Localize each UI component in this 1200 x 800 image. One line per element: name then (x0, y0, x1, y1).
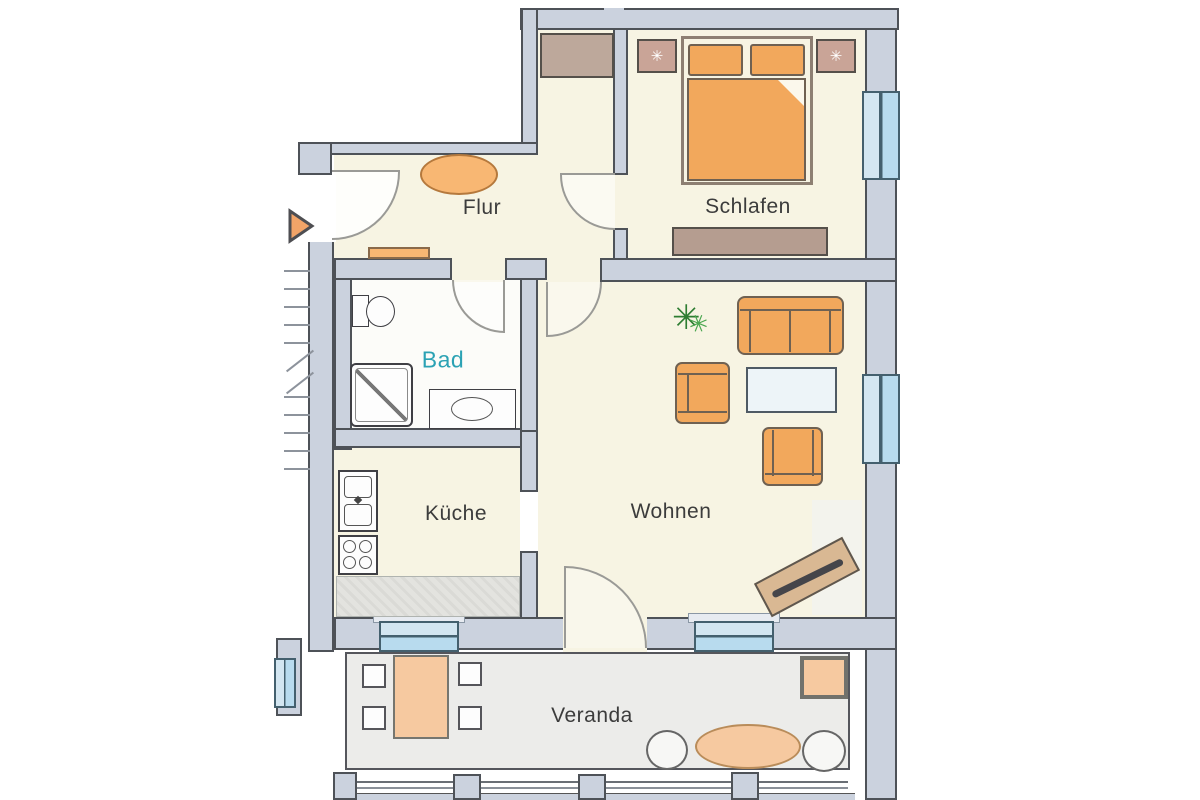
burner (343, 556, 356, 569)
burner (343, 540, 356, 553)
shower (350, 363, 413, 427)
colonnade-pillar (731, 772, 759, 800)
veranda-chair (362, 706, 386, 730)
nightstand-left: ✳ (637, 39, 677, 73)
room-label-veranda: Veranda (551, 704, 633, 728)
wohnen-door-leaf (546, 282, 548, 337)
floor-plan: ✳ ✳ ✳ ✳ (0, 0, 1200, 800)
bad-right-wall (520, 278, 538, 432)
schlafen-flur-wall (613, 28, 628, 175)
colonnade-pillar (453, 774, 481, 800)
room-label-wohnen: Wohnen (631, 500, 712, 524)
veranda-side-table (800, 656, 848, 699)
bed-pillow-left (688, 44, 743, 76)
burner (359, 540, 372, 553)
plant-icon: ✳ ✳ (672, 298, 724, 350)
room-label-schlafen: Schlafen (705, 195, 791, 219)
flur-top-wall (298, 142, 538, 155)
veranda-chair (458, 706, 482, 730)
bathroom-sink (429, 389, 516, 429)
burner (359, 556, 372, 569)
veranda-oval-table (695, 724, 801, 769)
wohnen-window (862, 374, 900, 464)
veranda-round-chair (646, 730, 688, 770)
veranda-door-leaf (564, 566, 566, 648)
wardrobe (540, 33, 614, 78)
kueche-right-wall-upper (520, 430, 538, 492)
coffee-table (746, 367, 837, 413)
veranda-chair (458, 662, 482, 686)
kueche-window (379, 621, 459, 652)
stove (338, 535, 378, 575)
entrance-arrow-icon (286, 208, 316, 244)
wohnen-veranda-window (694, 621, 774, 652)
kueche-right-wall-lower (520, 551, 538, 619)
wohnen-door-opening (547, 256, 600, 284)
top-wall-notch (604, 8, 624, 12)
schlafen-door-leaf (560, 173, 615, 175)
hall-bench (368, 247, 430, 259)
sofa-arm-line (829, 310, 831, 352)
veranda-round-chair (802, 730, 846, 772)
kitchen-counter (336, 576, 520, 617)
kitchen-sink-unit (338, 470, 378, 532)
schlafen-window (862, 91, 900, 180)
flur-bottom-wall (334, 258, 452, 280)
schlafen-bottom-wall (600, 258, 897, 282)
door-stub-mid (505, 258, 547, 280)
room-label-flur: Flur (463, 196, 501, 220)
room-label-kueche: Küche (425, 502, 487, 526)
sink-basin (451, 397, 493, 421)
bad-door-opening (452, 256, 505, 282)
entrance-pillar (298, 142, 332, 175)
nightstand-right: ✳ (816, 39, 856, 73)
dresser (672, 227, 828, 256)
flur-niche-left-wall (521, 8, 538, 155)
bad-bottom-wall (334, 428, 522, 448)
toilet-bowl (366, 296, 395, 327)
veranda-chair (362, 664, 386, 688)
bed-blanket-fold (778, 80, 804, 106)
outer-wall-top (520, 8, 899, 30)
entrance-door-leaf (332, 170, 400, 172)
schlafen-door-stub (613, 228, 628, 260)
room-label-bad: Bad (422, 347, 464, 374)
sofa-divider-line (789, 310, 791, 352)
colonnade-pillar (578, 774, 606, 800)
outer-wall-left (308, 240, 334, 652)
bed-pillow-right (750, 44, 805, 76)
armchair-left (675, 362, 730, 424)
hall-rug (420, 154, 498, 195)
bad-door-leaf (503, 280, 505, 333)
colonnade-pillar (333, 772, 357, 800)
veranda-table (393, 655, 449, 739)
sofa-arm-line (749, 310, 751, 352)
stairwell-window (274, 658, 296, 708)
